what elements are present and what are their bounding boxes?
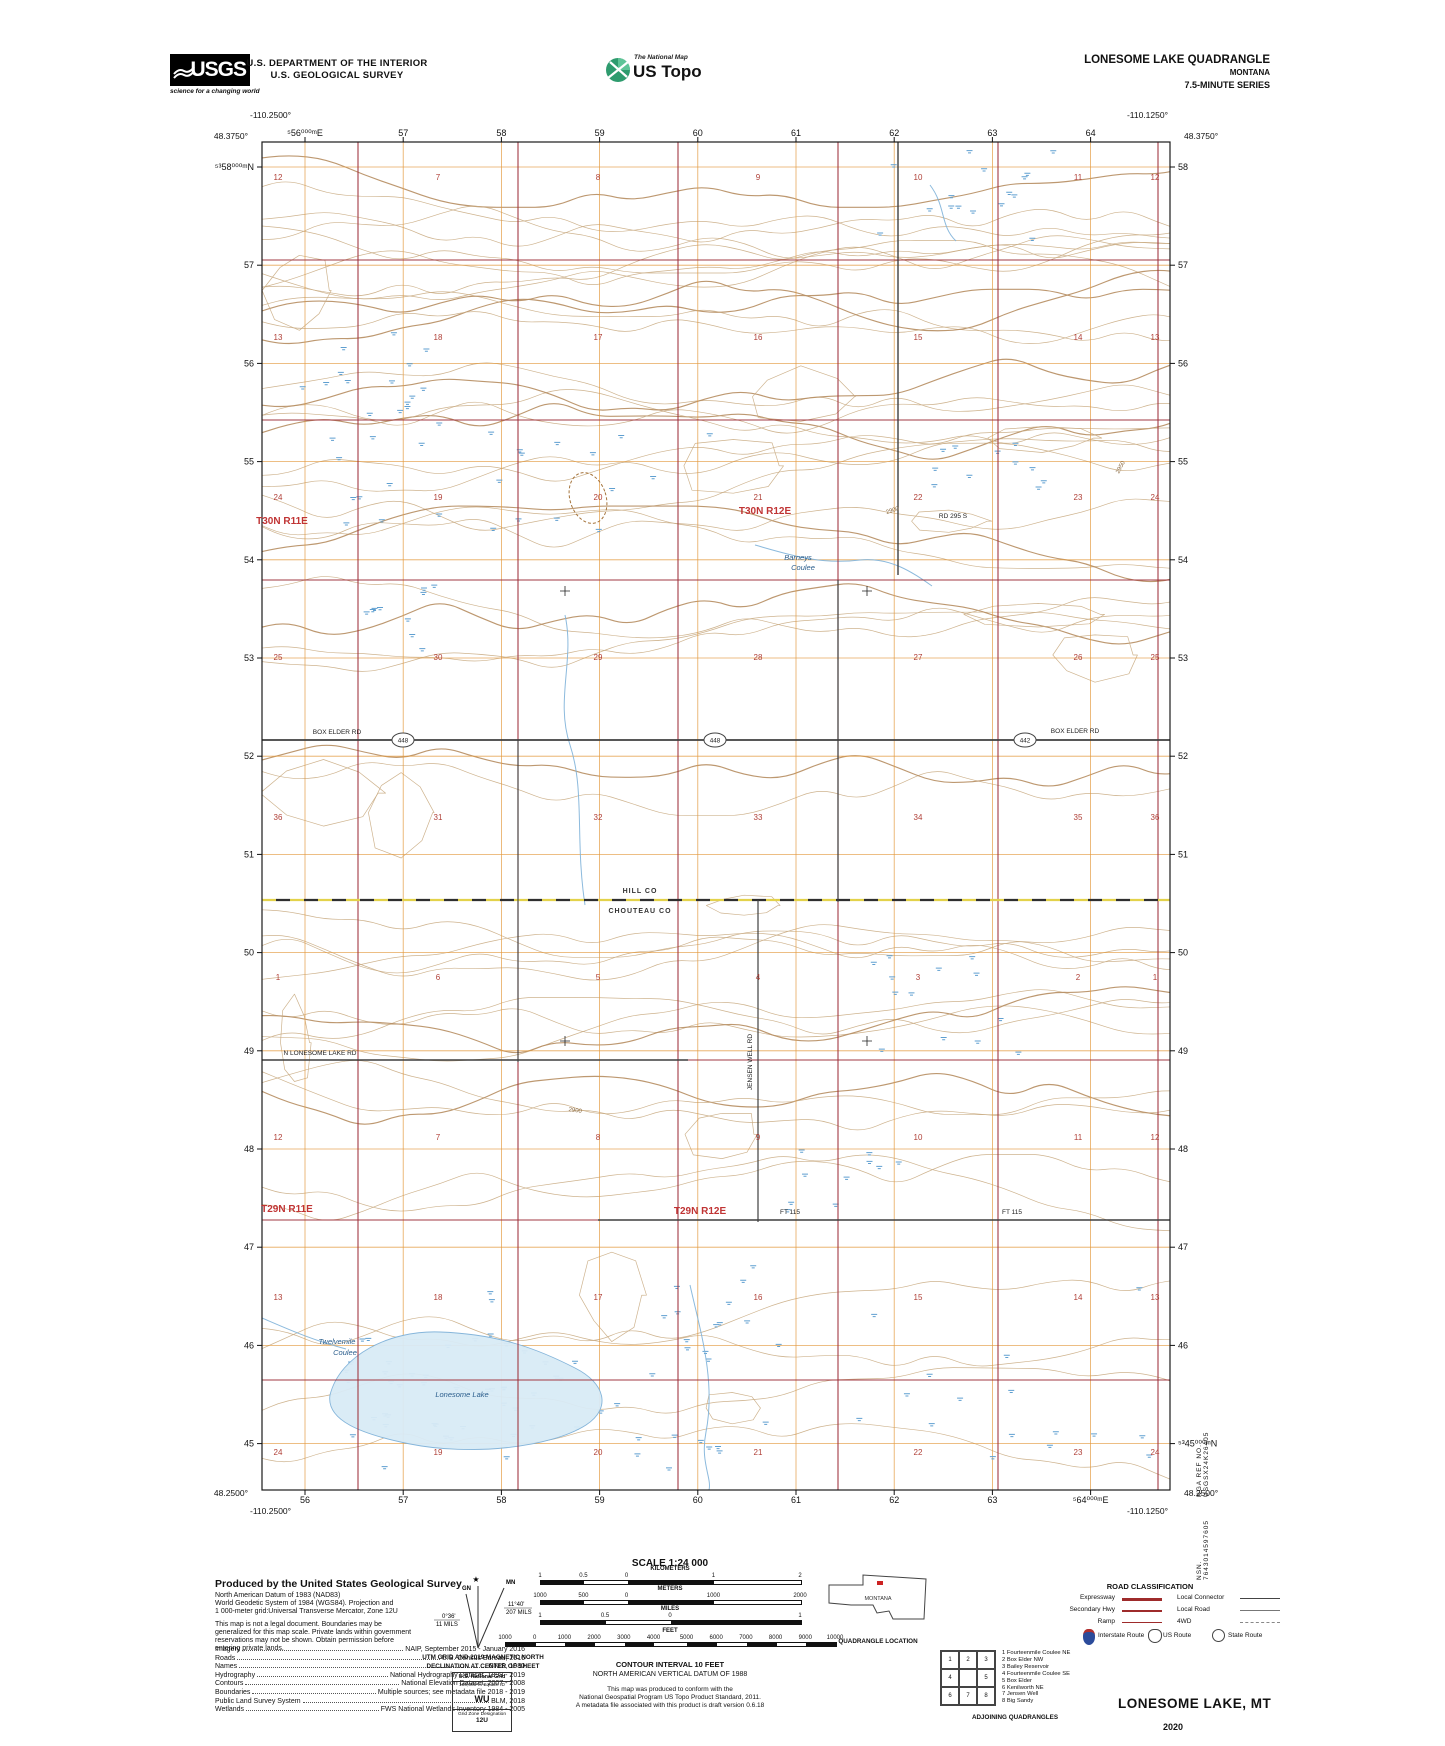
county-labels: HILL COCHOUTEAU CO — [608, 888, 671, 915]
dot-leader — [245, 1684, 399, 1685]
road-class-label: Expressway — [1030, 1594, 1115, 1601]
road-class-label: 4WD — [1177, 1618, 1237, 1625]
usgs-wave-icon — [173, 61, 195, 79]
section-number: 24 — [274, 1448, 283, 1457]
section-number: 26 — [1074, 653, 1083, 662]
section-number: 23 — [1074, 1448, 1083, 1457]
scale-bar-strip — [540, 1600, 802, 1605]
scale-bar-tick-label: 1 — [538, 1573, 541, 1579]
grid-label: 56 — [1178, 358, 1188, 368]
quad-series: 7.5-MINUTE SERIES — [1000, 80, 1270, 90]
grid-label: ⁵³58⁰⁰⁰ᵐN — [215, 162, 254, 172]
water-feature-label: Lonesome Lake — [435, 1390, 488, 1399]
adjoining-quad-name: 6 Kenilworth NE — [1002, 1685, 1122, 1692]
section-number: 13 — [274, 333, 283, 342]
grid-label: 58 — [1178, 162, 1188, 172]
grid-label: 57 — [398, 1495, 408, 1505]
road-class-sample-connector — [1240, 1598, 1280, 1599]
road-label: RD 295 S — [939, 513, 968, 520]
grid-label: 48.2500° — [1184, 1488, 1218, 1498]
road-label: N LONESOME LAKE RD — [284, 1050, 357, 1057]
data-source-label: Roads — [215, 1655, 235, 1664]
county-name-lower: CHOUTEAU CO — [608, 908, 671, 915]
scale-bar-unit: KILOMETERS — [630, 1566, 710, 1572]
grid-label: 63 — [987, 128, 997, 138]
section-number: 24 — [1151, 1448, 1160, 1457]
section-number: 11 — [1074, 1133, 1083, 1142]
road-label: BOX ELDER RD — [313, 729, 362, 736]
section-number: 30 — [434, 653, 443, 662]
topo-map: ⁵56⁰⁰⁰ᵐE57585960616263645657585960616263… — [0, 0, 1445, 1746]
grid-label: 58 — [496, 1495, 506, 1505]
section-number: 15 — [914, 333, 923, 342]
magnetic-north-label: MN — [506, 1580, 515, 1586]
quadrangle-heading: LONESOME LAKE QUADRANGLE MONTANA 7.5-MIN… — [1000, 54, 1270, 90]
grid-label: 49 — [244, 1046, 254, 1056]
road-class-label: Local Road — [1177, 1606, 1237, 1613]
true-north-star: ★ — [472, 1575, 479, 1584]
road-class-sample-ramp — [1122, 1622, 1162, 1623]
scale-bar-tick-label: 2000 — [587, 1635, 600, 1641]
scale-bar-tick-label: 0.5 — [579, 1573, 587, 1579]
scale-bar-strip — [505, 1642, 837, 1647]
grid-label: 57 — [398, 128, 408, 138]
scale-bar-unit: METERS — [630, 1586, 710, 1592]
road-class-sample-fourwd — [1240, 1622, 1280, 1623]
credit-line: North American Datum of 1983 (NAD83) — [215, 1592, 445, 1600]
grid-label: 55 — [1178, 457, 1188, 467]
scale-bar-tick-label: 0 — [625, 1573, 628, 1579]
section-number: 17 — [594, 1293, 603, 1302]
water-feature-label: Barneys — [784, 553, 812, 562]
scale-bar-tick-label: 4000 — [647, 1635, 660, 1641]
grid-label: 47 — [1178, 1242, 1188, 1252]
grid-label: ⁵64⁰⁰⁰ᵐE — [1073, 1495, 1109, 1505]
grid-label: 60 — [693, 1495, 703, 1505]
section-number: 15 — [914, 1293, 923, 1302]
water-feature-label: Coulee — [791, 563, 815, 572]
section-number: 20 — [594, 493, 603, 502]
section-number: 34 — [914, 813, 923, 822]
section-number: 9 — [756, 1133, 761, 1142]
scale-bar-strip — [540, 1620, 802, 1625]
scale-bar-tick-label: 1 — [798, 1613, 801, 1619]
section-number: 2 — [1076, 973, 1081, 982]
scale-bar-tick-label: 500 — [578, 1593, 588, 1599]
scale-bar-tick-label: 6000 — [710, 1635, 723, 1641]
section-number: 19 — [434, 493, 443, 502]
adjoining-cell: 2 — [959, 1651, 977, 1669]
grid-label: 53 — [1178, 653, 1188, 663]
section-number: 29 — [594, 653, 603, 662]
grid-label: 48 — [244, 1144, 254, 1154]
conformance-line: A metadata file associated with this pro… — [505, 1702, 835, 1710]
contour-interval: CONTOUR INTERVAL 10 FEET — [505, 1660, 835, 1669]
sheet-title: LONESOME LAKE, MT — [1118, 1696, 1338, 1711]
scale-bar-tick-label: 2 — [798, 1573, 801, 1579]
grid-label: 64 — [1086, 128, 1096, 138]
grid-label: 54 — [244, 555, 254, 565]
section-number: 12 — [1151, 1133, 1160, 1142]
usng-gzd: 12U — [453, 1717, 511, 1724]
scale-bar-tick-label: 9000 — [799, 1635, 812, 1641]
road-label: FT 115 — [780, 1209, 800, 1216]
adjoining-cell: 3 — [977, 1651, 995, 1669]
usng-title: U.S. National Grid — [453, 1673, 511, 1682]
grid-label: 50 — [1178, 948, 1188, 958]
adjoining-quad-name: 2 Box Elder NW — [1002, 1657, 1122, 1664]
grid-label: 50 — [244, 948, 254, 958]
grid-label: 51 — [244, 849, 254, 859]
section-number: 5 — [596, 973, 601, 982]
section-number: 3 — [916, 973, 921, 982]
grid-label: 46 — [1178, 1340, 1188, 1350]
section-number: 10 — [914, 1133, 923, 1142]
grid-label: 62 — [889, 128, 899, 138]
dept-line2: U.S. GEOLOGICAL SURVEY — [237, 70, 437, 82]
usng-box: U.S. National Grid 100,000-m Square ID W… — [452, 1672, 512, 1732]
section-number: 7 — [436, 1133, 441, 1142]
scale-bar-tick-label: 0 — [533, 1635, 536, 1641]
section-number: 36 — [1151, 813, 1160, 822]
adjoining-cell: 7 — [959, 1687, 977, 1705]
credit-line: This map is not a legal document. Bounda… — [215, 1621, 445, 1629]
section-number: 4 — [756, 973, 761, 982]
data-source-label: Wetlands — [215, 1706, 244, 1715]
adjoining-cell — [959, 1669, 977, 1687]
section-number: 13 — [1151, 333, 1160, 342]
adjoining-cell: 4 — [941, 1669, 959, 1687]
section-number: 10 — [914, 173, 923, 182]
grid-label: 58 — [496, 128, 506, 138]
section-number: 13 — [1151, 1293, 1160, 1302]
section-number: 9 — [756, 173, 761, 182]
grid-label: 55 — [244, 457, 254, 467]
adjoining-quad-name: 8 Big Sandy — [1002, 1698, 1122, 1705]
section-number: 24 — [1151, 493, 1160, 502]
section-number: 28 — [754, 653, 763, 662]
adjoining-cell: 5 — [977, 1669, 995, 1687]
wetlands-layer — [300, 151, 1153, 1470]
us-shield-icon — [1148, 1629, 1162, 1643]
grid-label: -110.1250° — [1127, 110, 1168, 120]
contours-layer — [250, 156, 1181, 1484]
adjoining-quad-name: 4 Fourteenmile Coulee SE — [1002, 1671, 1122, 1678]
section-number: 14 — [1074, 333, 1083, 342]
dept-line1: U.S. DEPARTMENT OF THE INTERIOR — [237, 58, 437, 70]
credit-line: World Geodetic System of 1984 (WGS84). P… — [215, 1600, 445, 1608]
water-feature-label: Coulee — [333, 1348, 357, 1357]
adjoining-quads-list: 1 Fourteenmile Coulee NE2 Box Elder NW3 … — [1002, 1650, 1122, 1705]
section-number: 33 — [754, 813, 763, 822]
dot-leader — [252, 1693, 375, 1694]
mn-mils: 207 MILS — [506, 1610, 532, 1616]
conformance-note: This map was produced to conform with th… — [505, 1686, 835, 1710]
county-name-upper: HILL CO — [623, 888, 658, 895]
conformance-line: National Geospatial Program US Topo Prod… — [505, 1694, 835, 1702]
usng-gzd-label: Grid Zone Designation — [453, 1710, 511, 1717]
credit-line: 1 000-meter grid:Universal Transverse Me… — [215, 1608, 445, 1616]
scale-bar-tick-label: 0.5 — [601, 1613, 609, 1619]
grid-label: 48.3750° — [1184, 131, 1218, 141]
grid-label: 46 — [244, 1340, 254, 1350]
scale-bar-strip — [540, 1580, 802, 1585]
township-labels: T30N R11ET30N R12ET29N R11ET29N R12E — [256, 506, 791, 1217]
data-source-label: Contours — [215, 1680, 243, 1689]
section-number: 16 — [754, 1293, 763, 1302]
quad-title: LONESOME LAKE QUADRANGLE — [1000, 54, 1270, 66]
section-number: 24 — [274, 493, 283, 502]
section-number: 12 — [1151, 173, 1160, 182]
road-class-label: Secondary Hwy — [1030, 1606, 1115, 1613]
route-number: 448 — [710, 737, 721, 744]
scale-bar-tick-label: 2000 — [793, 1593, 806, 1599]
interstate-shield-icon — [1083, 1629, 1095, 1645]
scale-bar-tick-label: 8000 — [769, 1635, 782, 1641]
grid-label: 49 — [1178, 1046, 1188, 1056]
adjoining-quads-caption: ADJOINING QUADRANGLES — [935, 1714, 1095, 1721]
section-number: 14 — [1074, 1293, 1083, 1302]
grid-label: 51 — [1178, 849, 1188, 859]
quad-location-caption: QUADRANGLE LOCATION — [826, 1638, 930, 1645]
road-class-sample-expressway — [1122, 1598, 1162, 1601]
scale-bar-tick-label: 7000 — [739, 1635, 752, 1641]
section-number: 12 — [274, 173, 283, 182]
us-topo-label: US Topo — [633, 62, 702, 82]
adjoining-quad-name: 3 Bailey Reservoir — [1002, 1664, 1122, 1671]
route-number: 448 — [398, 737, 409, 744]
national-map-icon — [604, 56, 632, 84]
township-label: T30N R11E — [256, 516, 308, 527]
state-shield-icon — [1212, 1629, 1225, 1642]
grid-label: 48.2500° — [214, 1488, 248, 1498]
road-classification-title: ROAD CLASSIFICATION — [1030, 1582, 1270, 1591]
adjoining-cell: 6 — [941, 1687, 959, 1705]
data-source-label: Names — [215, 1663, 237, 1672]
vertical-datum: NORTH AMERICAN VERTICAL DATUM OF 1988 — [505, 1671, 835, 1678]
section-number: 12 — [274, 1133, 283, 1142]
usgs-tagline: science for a changing world — [170, 88, 320, 95]
scale-bar-tick-label: 0 — [668, 1613, 671, 1619]
route-number: 442 — [1020, 737, 1031, 744]
section-number: 27 — [914, 653, 923, 662]
township-label: T30N R12E — [739, 506, 792, 517]
grid-label: 53 — [244, 653, 254, 663]
grid-label: 47 — [244, 1242, 254, 1252]
national-map-label: The National Map — [634, 54, 688, 61]
section-numbers: 1278910111213181716151413241920212223242… — [274, 173, 1160, 1457]
road-class-label: Local Connector — [1177, 1594, 1237, 1601]
mn-degrees: 11°40' — [508, 1602, 524, 1608]
grid-label: 61 — [791, 1495, 801, 1505]
grid-label: ⁵³45⁰⁰⁰ᵐN — [1178, 1439, 1217, 1449]
township-label: T29N R12E — [674, 1206, 727, 1217]
grid-label: -110.1250° — [1127, 1506, 1168, 1516]
scale-bar-tick-label: 1000 — [498, 1635, 511, 1641]
scale-bar-unit: MILES — [630, 1606, 710, 1612]
grid-label: 62 — [889, 1495, 899, 1505]
usng-square-id: WU — [453, 1688, 511, 1710]
scale-bar-tick-label: 1 — [538, 1613, 541, 1619]
dot-leader — [257, 1676, 388, 1677]
section-number: 18 — [434, 333, 443, 342]
scale-bar-tick-label: 1 — [712, 1573, 715, 1579]
adjoining-quads-grid: 12345678 — [940, 1650, 996, 1706]
road-class-label: Ramp — [1030, 1618, 1115, 1625]
credit-line: generalized for this map scale. Private … — [215, 1629, 445, 1637]
section-number: 1 — [1153, 973, 1158, 982]
section-number: 8 — [596, 173, 601, 182]
adjoining-cell: 1 — [941, 1651, 959, 1669]
department-heading: U.S. DEPARTMENT OF THE INTERIOR U.S. GEO… — [237, 58, 437, 82]
scale-bar-unit: FEET — [630, 1628, 710, 1634]
sheet-year: 2020 — [1118, 1722, 1228, 1732]
state-locator-map: MONTANA — [826, 1572, 930, 1628]
water-feature-label: Twelvemile — [319, 1337, 356, 1346]
scale-bar-tick-label: 5000 — [680, 1635, 693, 1641]
grid-label: 57 — [1178, 260, 1188, 270]
section-number: 25 — [274, 653, 283, 662]
usng-subtitle: 100,000-m Square ID — [453, 1682, 511, 1688]
road-class-sample-local — [1240, 1610, 1280, 1611]
grid-label: 63 — [987, 1495, 997, 1505]
streams-layer — [262, 185, 956, 1490]
section-number: 21 — [754, 1448, 763, 1457]
dot-leader — [242, 1650, 403, 1651]
data-source-label: Public Land Survey System — [215, 1698, 301, 1707]
grid-label: 48.3750° — [214, 131, 248, 141]
contour-elevation-label: 2900 — [568, 1107, 583, 1115]
gn-mils: 11 MILS — [436, 1622, 458, 1628]
section-number: 31 — [434, 813, 443, 822]
adjoining-quad-name: 5 Box Elder — [1002, 1678, 1122, 1685]
data-source-label: Imagery — [215, 1646, 240, 1655]
section-number: 17 — [594, 333, 603, 342]
dot-leader — [246, 1710, 379, 1711]
section-number: 36 — [274, 813, 283, 822]
grid-label: -110.2500° — [250, 1506, 291, 1516]
data-source-label: Boundaries — [215, 1689, 250, 1698]
section-number: 11 — [1074, 173, 1083, 182]
conformance-line: This map was produced to conform with th… — [505, 1686, 835, 1694]
grid-label: 56 — [244, 358, 254, 368]
quad-state: MONTANA — [1000, 68, 1270, 77]
adjoining-quad-name: 1 Fourteenmile Coulee NE — [1002, 1650, 1122, 1657]
section-number: 22 — [914, 1448, 923, 1457]
section-number: 35 — [1074, 813, 1083, 822]
state-name-label: MONTANA — [864, 1596, 891, 1602]
scale-bar-tick-label: 3000 — [617, 1635, 630, 1641]
adjoining-cell: 8 — [977, 1687, 995, 1705]
grid-label: 59 — [595, 128, 605, 138]
us-topo-logo: The National Map US Topo — [600, 52, 760, 94]
scale-bar-tick-label: 1000 — [558, 1635, 571, 1641]
credit-line: reservations may not be shown. Obtain pe… — [215, 1637, 445, 1645]
grid-label: 56 — [300, 1495, 310, 1505]
grid-label: -110.2500° — [250, 110, 291, 120]
grid-label: 57 — [244, 260, 254, 270]
data-source-label: Hydrography — [215, 1672, 255, 1681]
grid-label: 60 — [693, 128, 703, 138]
grid-label: 52 — [1178, 751, 1188, 761]
section-number: 20 — [594, 1448, 603, 1457]
map-credits: North American Datum of 1983 (NAD83)Worl… — [215, 1592, 445, 1653]
road-label: JENSEN WELL RD — [747, 1034, 754, 1090]
scale-bar-tick-label: 0 — [625, 1593, 628, 1599]
water-labels: BarneysCouleeTwelvemileCouleeLonesome La… — [319, 460, 1128, 1399]
grid-label: 54 — [1178, 555, 1188, 565]
section-number: 22 — [914, 493, 923, 502]
grid-label: 52 — [244, 751, 254, 761]
scale-bar-tick-label: 1000 — [533, 1593, 546, 1599]
road-class-shield-label: State Route — [1228, 1632, 1288, 1639]
road-label: FT 115 — [1002, 1209, 1022, 1216]
grid-label: 48 — [1178, 1144, 1188, 1154]
scale-bar-tick-label: 1000 — [707, 1593, 720, 1599]
section-number: 8 — [596, 1133, 601, 1142]
section-number: 23 — [1074, 493, 1083, 502]
section-number: 1 — [276, 973, 281, 982]
grid-labels: ⁵56⁰⁰⁰ᵐE57585960616263645657585960616263… — [214, 110, 1218, 1516]
grid-north-label: GN — [462, 1586, 471, 1592]
grid-label: 45 — [244, 1439, 254, 1449]
grid-label: ⁵56⁰⁰⁰ᵐE — [287, 128, 323, 138]
gn-degrees: 0°36' — [442, 1614, 456, 1620]
grid-label: 61 — [791, 128, 801, 138]
section-number: 25 — [1151, 653, 1160, 662]
section-number: 18 — [434, 1293, 443, 1302]
section-number: 32 — [594, 813, 603, 822]
section-number: 13 — [274, 1293, 283, 1302]
section-number: 21 — [754, 493, 763, 502]
township-label: T29N R11E — [261, 1204, 313, 1215]
section-number: 6 — [436, 973, 441, 982]
grid-label: 59 — [595, 1495, 605, 1505]
adjoining-quad-name: 7 Jensen Well — [1002, 1691, 1122, 1698]
section-number: 19 — [434, 1448, 443, 1457]
quad-location-marker — [877, 1581, 883, 1585]
road-class-sample-secondary — [1122, 1610, 1162, 1612]
section-number: 16 — [754, 333, 763, 342]
road-label: BOX ELDER RD — [1051, 728, 1100, 735]
section-number: 7 — [436, 173, 441, 182]
